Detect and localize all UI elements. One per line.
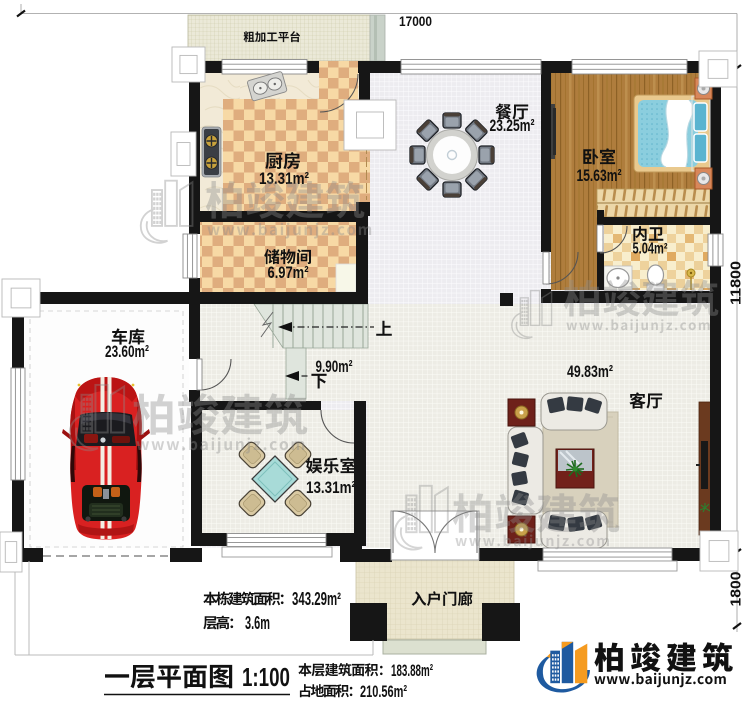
svg-text:5.04m²: 5.04m²: [633, 241, 668, 258]
svg-text:17000: 17000: [399, 13, 432, 29]
svg-text:1800: 1800: [727, 572, 744, 607]
svg-text:3.6m: 3.6m: [245, 613, 270, 633]
svg-text:343.29m²: 343.29m²: [292, 589, 341, 609]
svg-text:1:100: 1:100: [242, 662, 290, 692]
svg-text:210.56m²: 210.56m²: [360, 682, 407, 701]
svg-text:6.97m²: 6.97m²: [268, 264, 309, 282]
svg-text:9.90m²: 9.90m²: [316, 358, 353, 376]
svg-text:23.25m²: 23.25m²: [490, 117, 535, 135]
svg-text:11800: 11800: [727, 261, 744, 305]
svg-text:183.88m²: 183.88m²: [391, 661, 433, 680]
svg-text:13.31m²: 13.31m²: [306, 479, 356, 497]
svg-text:15.63m²: 15.63m²: [577, 167, 622, 185]
svg-text:23.60m²: 23.60m²: [105, 343, 149, 361]
svg-text:49.83m²: 49.83m²: [567, 363, 613, 381]
